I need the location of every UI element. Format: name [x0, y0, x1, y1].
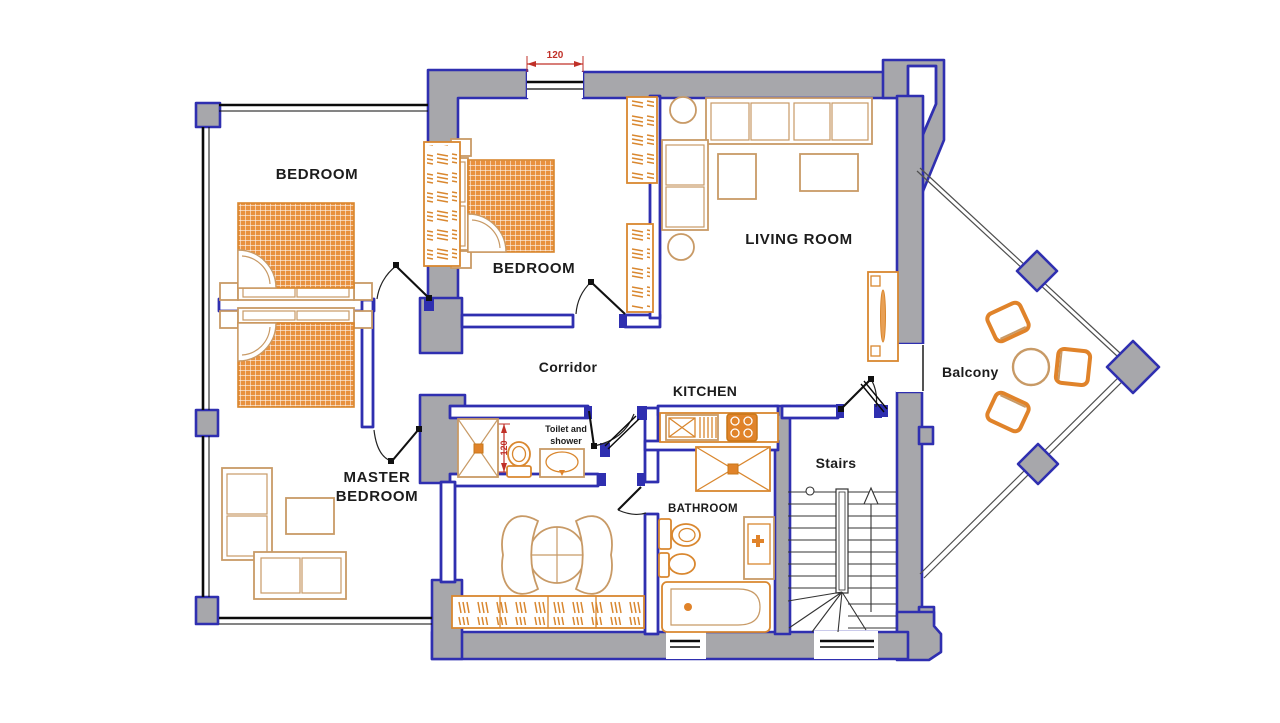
balcony-door-post — [876, 405, 888, 417]
shower-icon-toilet-room — [458, 419, 498, 477]
dimension-top-window: 120 — [527, 50, 583, 72]
bed-icon-master — [220, 308, 372, 407]
label-balcony: Balcony — [942, 364, 999, 380]
wall-stairs-top — [782, 406, 838, 418]
wall-right-bump1 — [919, 427, 933, 444]
door-post — [619, 314, 627, 328]
vanity-icon — [744, 517, 774, 579]
balcony-chair-icon — [985, 391, 1030, 433]
sofa-icon-master-2 — [254, 552, 346, 599]
coffee-table-icon-living — [718, 154, 756, 199]
window-left-upper — [203, 127, 209, 410]
floor-plan-drawing: 120 120 — [0, 0, 1280, 723]
dimension-toilet-room: 120 — [498, 424, 510, 472]
balcony-chair-icon — [985, 301, 1030, 343]
window-bathroom-bottom — [666, 631, 706, 659]
wall-right-upper — [897, 96, 923, 344]
wall-ts-top — [450, 406, 588, 418]
toilet-icon-bathroom — [659, 519, 700, 549]
dim-window-120: 120 — [547, 50, 564, 61]
tv-cabinet-icon — [868, 272, 898, 361]
balcony-door-opening — [896, 344, 925, 392]
door-bedroom1 — [377, 262, 432, 301]
label-stairs: Stairs — [816, 455, 857, 471]
balcony-table-icon — [1013, 349, 1049, 385]
wardrobe-icon-bottom — [452, 596, 644, 628]
floor-plan-page: 120 120 — [0, 0, 1280, 723]
stove-icon — [727, 414, 757, 441]
kitchen-sink-icon — [666, 415, 718, 440]
coffee-table-icon-master — [286, 498, 334, 534]
label-master-line1: MASTER — [344, 469, 411, 486]
label-toilet-shower-line1: Toilet and — [545, 424, 587, 434]
label-bathroom: BATHROOM — [668, 503, 738, 515]
toilet-icon-small — [507, 442, 531, 477]
wardrobe-icon-shared — [424, 142, 460, 266]
window-master-bottom — [219, 618, 432, 624]
door-post — [637, 473, 645, 486]
sofa-icon-living-top — [706, 98, 872, 144]
door-bottom-room — [618, 487, 646, 514]
label-kitchen: KITCHEN — [673, 383, 737, 399]
window-bedroom1-top — [219, 105, 428, 111]
side-table-icon — [670, 97, 696, 123]
label-living-room: LIVING ROOM — [745, 231, 852, 248]
window-120 — [527, 72, 583, 98]
railing-post — [1017, 251, 1057, 291]
label-toilet-shower-line2: shower — [550, 436, 582, 446]
shower-icon-bathroom — [696, 447, 770, 491]
post-left-bottom — [196, 597, 218, 624]
post-left-mid — [196, 410, 218, 436]
wall-top-right — [583, 72, 899, 98]
bed-icon-bedroom-middle — [451, 139, 554, 268]
washbasin-icon-toilet-room — [540, 449, 584, 477]
bidet-icon — [659, 553, 695, 577]
stairs-icon — [788, 487, 896, 632]
balcony-chair-icon — [1055, 348, 1090, 385]
railing-post — [1018, 444, 1058, 484]
wardrobe-icon-bedroom2-bottom — [627, 224, 653, 312]
up-arrow-icon — [864, 488, 878, 612]
label-bedroom-left: BEDROOM — [276, 166, 359, 183]
table-icon-living — [800, 154, 858, 191]
window-stairs-bottom — [814, 631, 878, 659]
dining-table-icon — [529, 527, 585, 583]
label-bedroom-middle: BEDROOM — [493, 260, 576, 277]
door-stairs — [838, 376, 877, 412]
sofa-icon-living-left — [662, 140, 708, 230]
wall-bottomroom-left — [441, 482, 455, 582]
bathtub-icon — [662, 582, 770, 632]
door-post — [598, 473, 606, 486]
window-left-lower — [203, 436, 209, 597]
wardrobe-icon-bedroom2-top — [627, 97, 657, 183]
wall-bath-left-lower — [645, 514, 658, 634]
post-left-top — [196, 103, 220, 127]
wall-bedroom2-bottom-l — [462, 315, 573, 327]
label-corridor: Corridor — [539, 359, 598, 375]
kitchen-counter — [660, 413, 778, 442]
bed-icon-bedroom-left — [220, 203, 372, 300]
side-table-icon — [668, 234, 694, 260]
door-bedroom2 — [576, 279, 625, 314]
sofa-icon-master-1 — [222, 468, 272, 560]
door-master-bedroom — [374, 426, 422, 464]
label-master-line2: BEDROOM — [336, 488, 419, 505]
door-post — [637, 406, 647, 420]
